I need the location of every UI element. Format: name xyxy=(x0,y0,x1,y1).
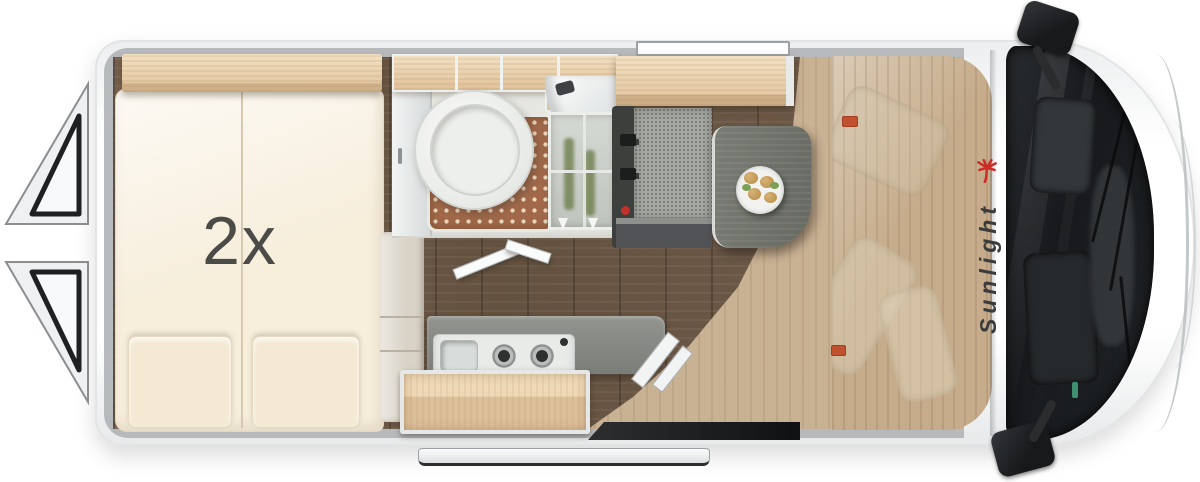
glass-shelf-divider xyxy=(583,114,586,228)
cushion-split xyxy=(380,350,424,352)
bench-front-panel xyxy=(616,218,712,248)
brand-logo: Sunlight xyxy=(977,178,999,358)
shelf-divider xyxy=(500,56,503,90)
food-garnish xyxy=(742,184,751,191)
toiletry-bottle xyxy=(564,138,574,210)
shelf-divider xyxy=(455,56,458,90)
bed-capacity-label: 2x xyxy=(170,196,310,286)
stove-burner-icon xyxy=(492,344,516,368)
rear-door-top-window xyxy=(32,116,79,214)
pillow xyxy=(128,336,232,428)
entry-step xyxy=(418,448,710,466)
sliding-door-opening xyxy=(588,422,800,440)
stove-knob xyxy=(560,338,568,346)
palm-tree-icon xyxy=(974,158,1000,184)
cab-seat-silhouette xyxy=(832,81,954,202)
seatbelt-buckle-icon xyxy=(620,134,636,146)
dashboard-detail xyxy=(1072,382,1078,398)
food-item xyxy=(748,188,761,200)
stove-burner-icon xyxy=(530,344,554,368)
roof-skylight xyxy=(636,41,790,56)
cab-roof-cutaway xyxy=(832,56,992,430)
food-garnish xyxy=(770,182,779,189)
food-item xyxy=(744,172,758,184)
hood-curve-line xyxy=(1146,120,1196,370)
red-label-tag xyxy=(842,116,858,127)
driver-seat xyxy=(1029,96,1098,196)
dinette-bench-seat xyxy=(634,108,712,220)
bench-red-knob xyxy=(621,206,630,215)
rear-door-bottom-window xyxy=(32,272,79,370)
rear-doors-open xyxy=(0,70,100,415)
kitchen-sink xyxy=(440,340,478,372)
cushion-split xyxy=(380,316,424,318)
cabinet-handle xyxy=(398,148,402,164)
toiletry-bottle xyxy=(585,150,595,216)
toilet-lid xyxy=(430,104,520,196)
red-label-tag xyxy=(831,345,846,356)
food-item xyxy=(764,192,777,203)
cab-seat-silhouette xyxy=(875,282,960,405)
headboard-shelf xyxy=(122,54,382,92)
pillow xyxy=(252,336,360,428)
passenger-seat xyxy=(1023,250,1100,385)
kitchen-open-shelf xyxy=(400,370,590,434)
dinette-overhead-locker xyxy=(616,56,794,106)
seatbelt-buckle-icon xyxy=(620,168,636,180)
campervan-floorplan: 2x xyxy=(0,0,1200,482)
